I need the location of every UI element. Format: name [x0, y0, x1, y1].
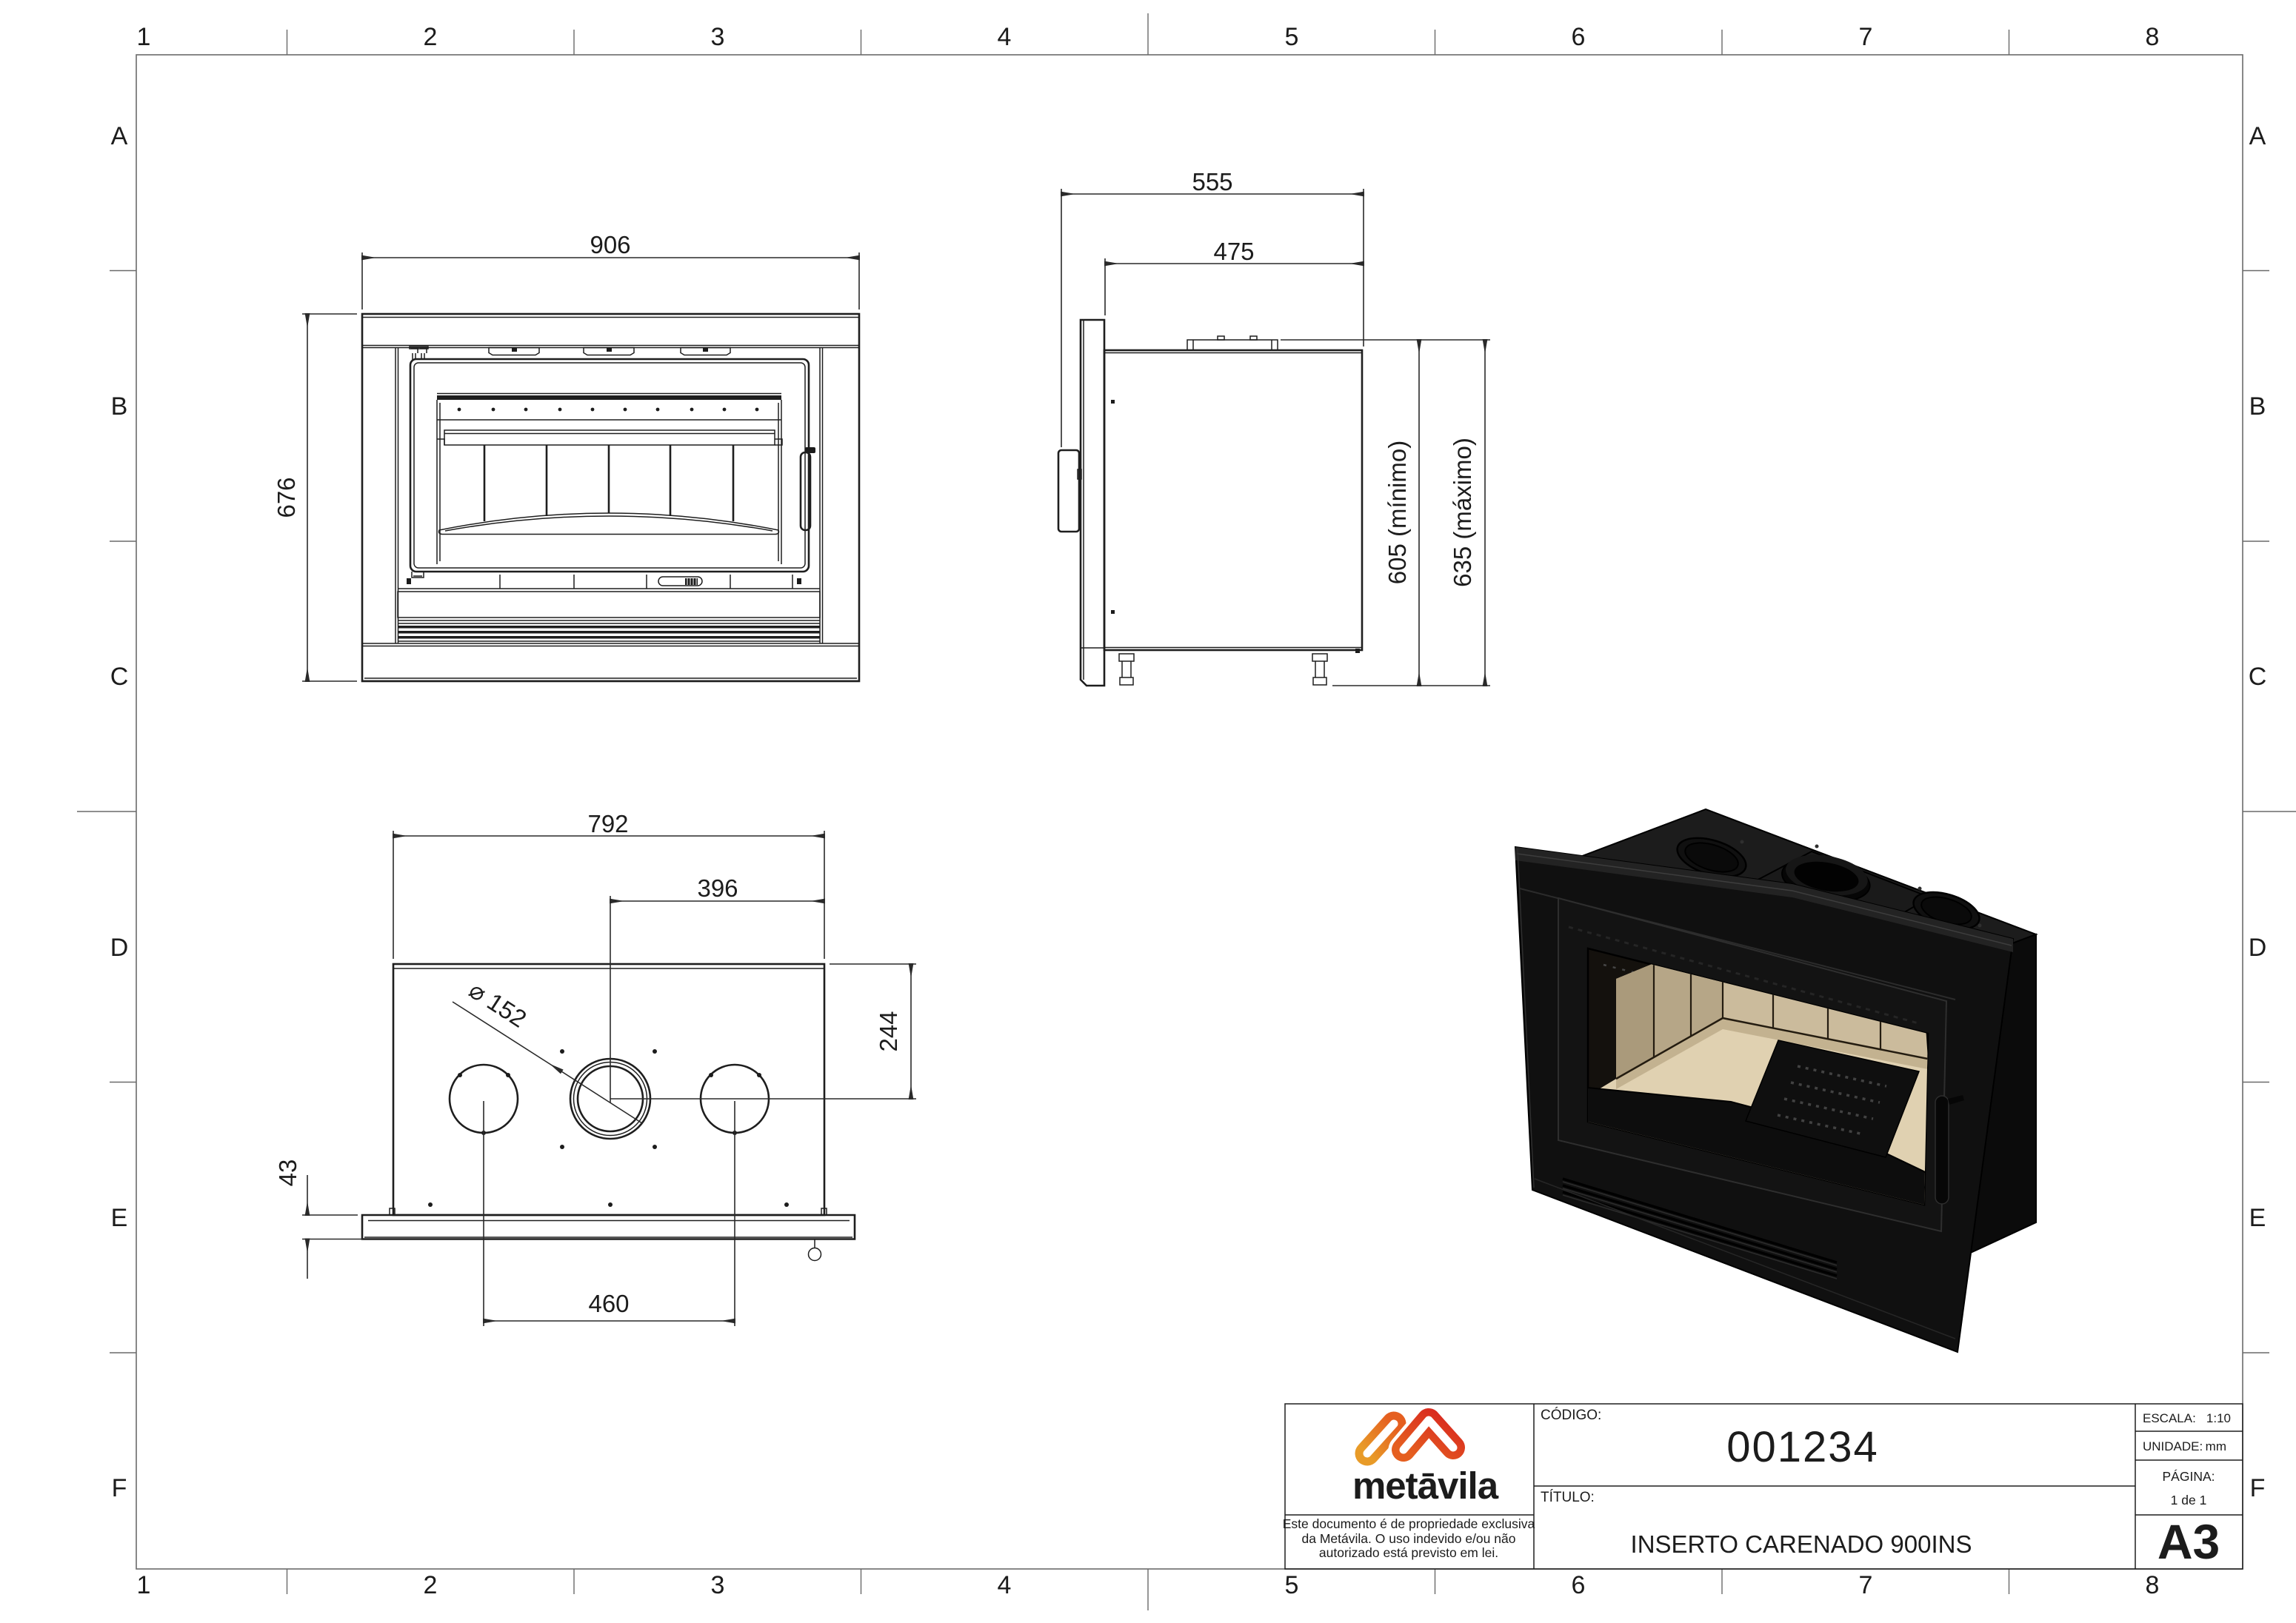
svg-text:6: 6 — [1572, 1571, 1586, 1599]
svg-text:B: B — [111, 392, 128, 421]
svg-text:5: 5 — [1285, 23, 1299, 51]
svg-text:INSERTO CARENADO 900INS: INSERTO CARENADO 900INS — [1631, 1530, 1972, 1558]
svg-text:CÓDIGO:: CÓDIGO: — [1541, 1407, 1601, 1423]
svg-text:906: 906 — [590, 231, 630, 258]
svg-text:ESCALA:: ESCALA: — [2143, 1411, 2196, 1425]
svg-text:676: 676 — [273, 477, 300, 518]
svg-text:1: 1 — [137, 1571, 151, 1599]
svg-text:D: D — [2249, 934, 2267, 962]
svg-text:1: 1 — [137, 23, 151, 51]
svg-text:TÍTULO:: TÍTULO: — [1541, 1490, 1595, 1505]
svg-text:605 (mínimo): 605 (mínimo) — [1384, 441, 1411, 584]
svg-text:792: 792 — [587, 810, 628, 837]
svg-text:8: 8 — [2146, 23, 2160, 51]
svg-text:8: 8 — [2146, 1571, 2160, 1599]
svg-text:2: 2 — [424, 1571, 438, 1599]
svg-text:PÁGINA:: PÁGINA: — [2163, 1469, 2215, 1484]
svg-text:metāvila: metāvila — [1352, 1465, 1499, 1507]
svg-text:E: E — [2249, 1204, 2266, 1232]
svg-text:2: 2 — [424, 23, 438, 51]
svg-text:autorizado está previsto em le: autorizado está previsto em lei. — [1319, 1545, 1498, 1560]
svg-text:E: E — [111, 1204, 128, 1232]
svg-text:UNIDADE:: UNIDADE: — [2143, 1439, 2203, 1453]
svg-text:4: 4 — [998, 1571, 1012, 1599]
svg-text:F: F — [112, 1474, 127, 1502]
svg-text:B: B — [2249, 392, 2266, 421]
svg-text:43: 43 — [274, 1159, 301, 1187]
svg-text:D: D — [110, 934, 129, 962]
svg-text:1 de 1: 1 de 1 — [2171, 1493, 2207, 1507]
svg-text:3: 3 — [711, 23, 725, 51]
svg-text:4: 4 — [998, 23, 1012, 51]
svg-text:001234: 001234 — [1726, 1423, 1879, 1471]
svg-text:7: 7 — [1859, 23, 1873, 51]
svg-text:3: 3 — [711, 1571, 725, 1599]
svg-text:396: 396 — [697, 874, 738, 902]
svg-text:1:10: 1:10 — [2206, 1411, 2231, 1425]
svg-text:A3: A3 — [2157, 1514, 2220, 1569]
svg-text:244: 244 — [875, 1011, 902, 1051]
svg-text:Este documento é de propriedad: Este documento é de propriedade exclusiv… — [1283, 1516, 1535, 1531]
svg-text:C: C — [2249, 663, 2267, 691]
svg-text:635 (máximo): 635 (máximo) — [1449, 438, 1476, 587]
svg-text:460: 460 — [588, 1290, 629, 1317]
svg-text:6: 6 — [1572, 23, 1586, 51]
svg-text:A: A — [111, 122, 128, 150]
svg-text:C: C — [110, 663, 129, 691]
svg-text:7: 7 — [1859, 1571, 1873, 1599]
svg-text:mm: mm — [2206, 1439, 2226, 1453]
svg-text:5: 5 — [1285, 1571, 1299, 1599]
svg-text:da Metávila. O uso indevido e/: da Metávila. O uso indevido e/ou não — [1302, 1531, 1516, 1546]
svg-text:555: 555 — [1192, 168, 1232, 195]
svg-text:A: A — [2249, 122, 2266, 150]
svg-text:F: F — [2250, 1474, 2266, 1502]
svg-text:475: 475 — [1213, 238, 1254, 265]
